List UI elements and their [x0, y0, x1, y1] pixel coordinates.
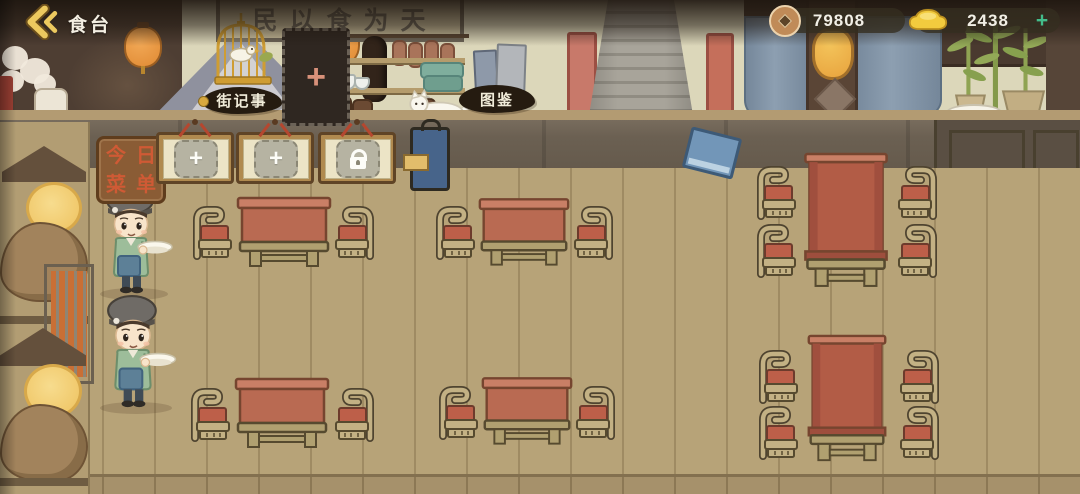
waiter-character-2[interactable]	[84, 294, 184, 410]
catalog-label: 图鉴	[480, 89, 514, 110]
back-button[interactable]	[16, 4, 64, 40]
menu-slot-2[interactable]: +	[236, 132, 314, 184]
page-title: 食台	[68, 10, 112, 37]
add-currency-button[interactable]: +	[1032, 11, 1052, 31]
currency-pill-ingots[interactable]: 2438 +	[916, 8, 1060, 33]
chair	[431, 206, 479, 260]
chair	[894, 166, 942, 220]
edge-shade	[0, 0, 16, 494]
chair	[572, 386, 620, 440]
table	[797, 152, 895, 290]
add-dish-button[interactable]: +	[254, 140, 298, 178]
street-journal-button[interactable]: 街记事	[202, 87, 282, 114]
add-dish-button[interactable]: +	[174, 140, 218, 178]
plus-icon: +	[189, 147, 203, 171]
table	[232, 376, 332, 450]
chair	[754, 350, 802, 404]
chair	[752, 166, 800, 220]
ingot-amount: 2438	[967, 11, 1009, 31]
game-screen: 民以食为天	[0, 0, 1080, 494]
catalog-button[interactable]: 图鉴	[459, 85, 535, 113]
chair	[331, 388, 379, 442]
table	[234, 196, 334, 268]
bell-icon	[198, 96, 209, 107]
cleaver-decor	[410, 127, 450, 191]
plus-icon: +	[269, 147, 283, 171]
gold-ingot-icon	[908, 4, 948, 34]
chair	[896, 406, 944, 460]
menu-slot-1[interactable]: +	[156, 132, 234, 184]
slot-hanger	[175, 122, 215, 137]
table	[479, 374, 575, 448]
slot-hanger	[337, 122, 377, 137]
menu-sign-char: 日	[136, 146, 156, 166]
chair	[754, 406, 802, 460]
table	[799, 334, 895, 464]
lock-icon	[350, 157, 366, 169]
chair	[186, 388, 234, 442]
chair	[434, 386, 482, 440]
chair	[331, 206, 379, 260]
floor-edge-band	[0, 474, 1080, 494]
plus-icon: +	[306, 60, 326, 94]
chair	[188, 206, 236, 260]
menu-slot-locked[interactable]	[318, 132, 396, 184]
chair	[752, 224, 800, 278]
menu-sign-char: 单	[136, 175, 156, 195]
chair	[896, 350, 944, 404]
street-journal-label: 街记事	[216, 90, 267, 111]
chair	[570, 206, 618, 260]
menu-sign-char: 今	[106, 146, 126, 166]
menu-sign-char: 菜	[106, 175, 126, 195]
copper-coin-icon	[769, 5, 801, 37]
chair	[894, 224, 942, 278]
table	[476, 196, 572, 268]
locked-slot-button[interactable]	[336, 140, 380, 178]
steamer-basket	[423, 75, 463, 92]
slot-hanger	[255, 122, 295, 137]
coin-amount: 79808	[813, 11, 865, 31]
currency-pill-coins[interactable]: 79808	[773, 8, 905, 33]
